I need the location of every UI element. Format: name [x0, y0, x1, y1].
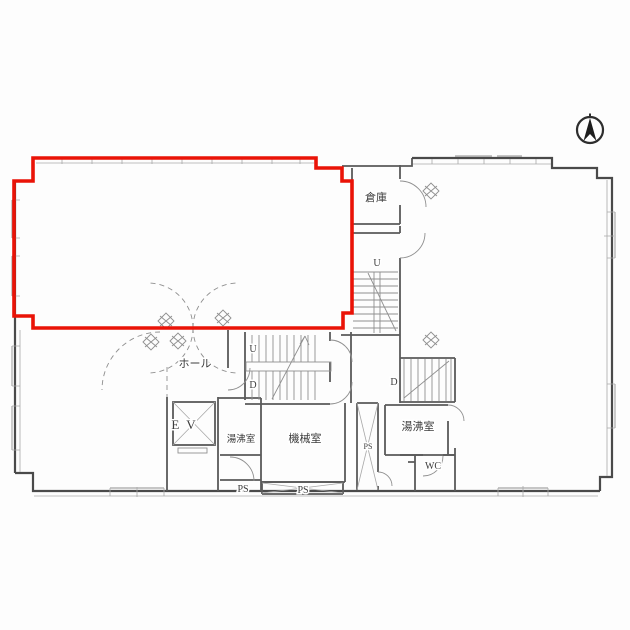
stairs-up-center-label: U: [249, 344, 257, 355]
wc-label: WC: [425, 461, 441, 472]
ps-left-label: PS: [237, 484, 248, 495]
floor-plan-page: 倉庫 ホール 機械室 湯沸室 湯沸室 WC EV PS PS PS U D U …: [0, 0, 630, 630]
floor-plan-drawing: 倉庫 ホール 機械室 湯沸室 湯沸室 WC EV PS PS PS U D U …: [0, 0, 630, 630]
stairs-up-right-label: U: [373, 258, 381, 269]
highlighted-unit-outline: [14, 158, 352, 328]
hall-label: ホール: [179, 357, 212, 370]
door-symbol-icon: [423, 183, 439, 199]
stairs-right-down: [404, 359, 451, 401]
door-arcs: [228, 181, 464, 486]
machine-room-label: 機械室: [289, 431, 322, 445]
kitchenette-right-label: 湯沸室: [402, 419, 435, 433]
door-symbol-icon: [143, 334, 159, 350]
door-symbol-icon: [170, 333, 186, 349]
storage-label: 倉庫: [365, 190, 387, 204]
stairs-right-up: [353, 272, 398, 333]
hall-door-swings: [102, 283, 238, 390]
kitchenette-center-label: 湯沸室: [227, 433, 256, 445]
door-symbols: [143, 183, 439, 350]
ps-shaft-label: PS: [364, 442, 373, 451]
door-symbol-icon: [215, 310, 231, 326]
stairs-center: [246, 335, 331, 400]
door-symbol-icon: [423, 332, 439, 348]
north-compass-icon: [577, 114, 603, 144]
ps-center-label: PS: [297, 485, 308, 496]
stairs-down-center-label: D: [249, 380, 256, 391]
stairs-down-right-label: D: [390, 377, 397, 388]
elevator-label: EV: [171, 417, 202, 432]
